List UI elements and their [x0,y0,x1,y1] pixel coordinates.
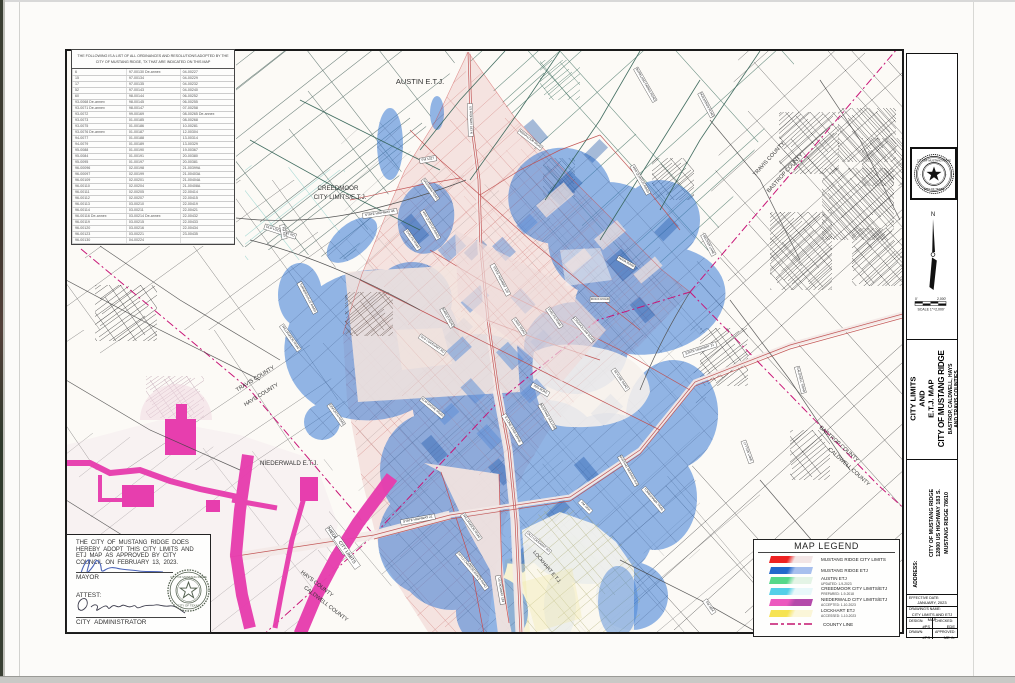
svg-text:NIEDERWALD E.T.J.: NIEDERWALD E.T.J. [260,460,318,467]
svg-text:N: N [931,212,935,218]
svg-text:CITY OF TEXAS: CITY OF TEXAS [923,186,943,190]
svg-text:*: * [945,174,946,176]
svg-text:SCALE 1"=2,000': SCALE 1"=2,000' [917,308,944,312]
svg-text:*: * [920,174,921,176]
svg-text:CITY OF MUSTANG RIDGE: CITY OF MUSTANG RIDGE [170,575,207,579]
svg-text:CITY OF TEXAS: CITY OF TEXAS [178,604,200,608]
svg-text:CREEDMOOR: CREEDMOOR [317,185,358,192]
svg-text:CITY OF MUSTANG RIDGE: CITY OF MUSTANG RIDGE [916,158,950,162]
svg-text:CITY LIMITS/E.T.J.: CITY LIMITS/E.T.J. [313,194,366,201]
svg-text:2,000': 2,000' [937,297,946,301]
svg-text:ROCK ROAD: ROCK ROAD [591,297,610,301]
svg-text:AUSTIN E.T.J.: AUSTIN E.T.J. [396,77,444,86]
svg-text:0': 0' [915,297,918,301]
